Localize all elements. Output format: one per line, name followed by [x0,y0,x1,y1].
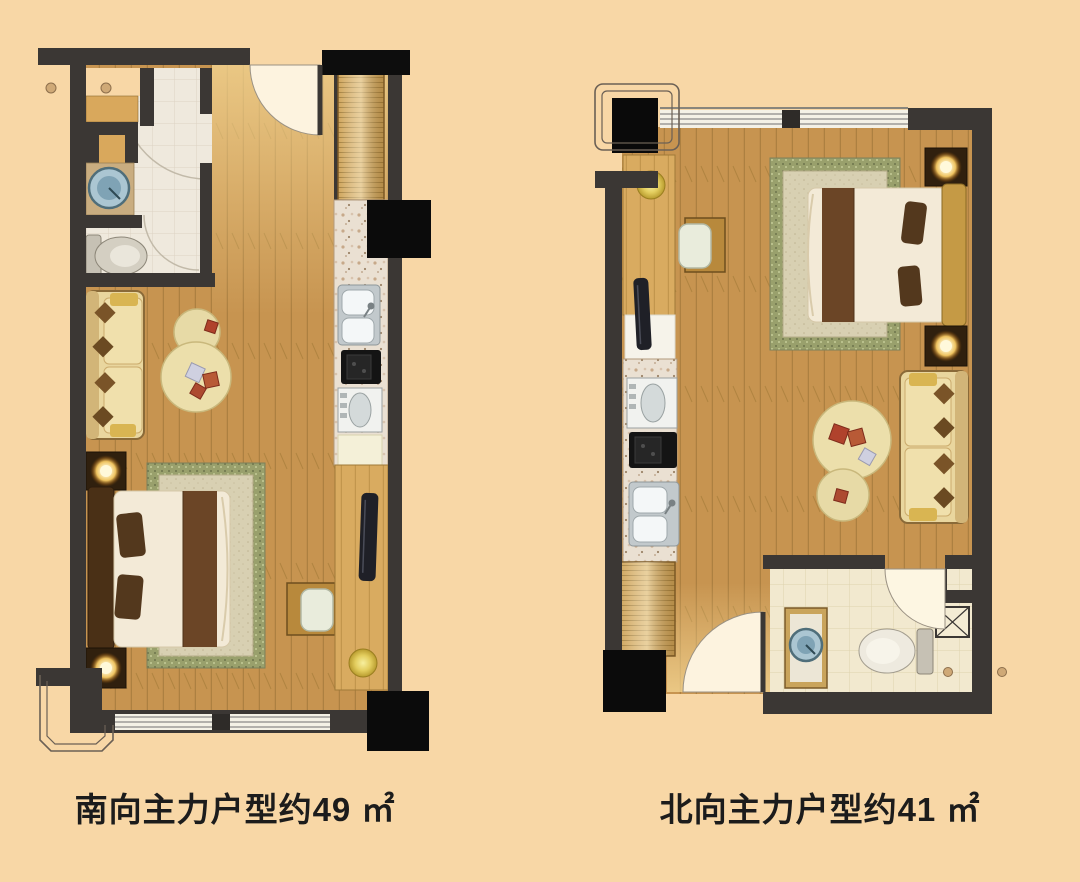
kitchen-counter-icon [623,359,679,562]
window-icon [115,714,330,730]
window-icon [660,107,908,128]
desk-chair-icon [287,583,335,635]
desk-chair-icon [679,218,725,272]
wall-segment [86,122,138,135]
caption-north-unit: 北向主力户型约41 ㎡ [595,783,1045,831]
tv-icon [358,493,378,582]
toilet-icon [859,629,933,674]
kitchen-appliance-icon [627,378,677,428]
wardrobe-icon [619,562,675,656]
floorplan-north [585,78,1025,728]
floorplan-south [20,35,450,765]
kitchen-appliance-icon [338,388,382,432]
double-sink-icon [338,285,380,345]
cooktop-icon [341,350,381,384]
entry-notch [86,68,142,96]
wall-segment [125,135,138,163]
entry-shelf [86,96,138,122]
floorplan-south-graphic [20,35,450,765]
double-bed-icon [88,487,230,649]
washing-machine-icon [785,608,827,688]
nightstand-lamp-icon [925,326,967,366]
double-sink-icon [629,482,679,546]
toilet-icon [86,235,147,277]
shelf-nook [99,135,125,163]
wall-segment [86,135,99,163]
nightstand-lamp-icon [86,452,126,490]
desk-icon [335,465,388,690]
caption-south-unit: 南向主力户型约49 ㎡ [25,783,445,831]
double-bed-icon [808,184,966,326]
washing-machine-icon [86,163,134,215]
wardrobe-icon [334,73,384,200]
cabinet-icon [338,435,382,465]
nightstand-lamp-icon [925,148,967,186]
cooktop-icon [629,432,677,468]
sofa-icon [900,371,968,523]
stool-icon [349,649,377,677]
floorplan-north-graphic [585,78,1025,728]
floor-plan-canvas: 南向主力户型约49 ㎡ 北向主力户型约41 ㎡ [0,0,1080,882]
sofa-icon [86,291,144,439]
